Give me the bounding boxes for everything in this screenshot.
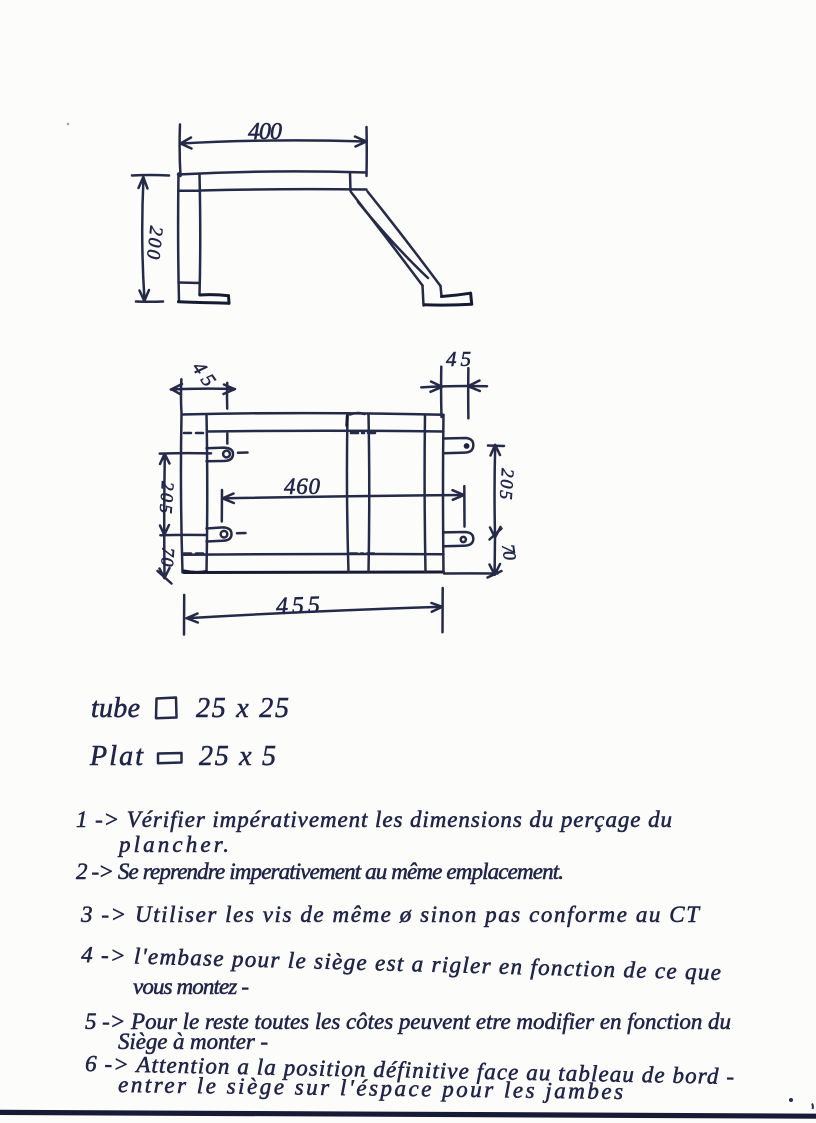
svg-text:455: 455 (275, 592, 320, 620)
svg-text:400: 400 (248, 119, 282, 145)
svg-text:25 x 25: 25 x 25 (196, 693, 289, 724)
svg-text:205: 205 (156, 481, 178, 514)
svg-text:200: 200 (142, 225, 166, 261)
svg-text:205: 205 (496, 468, 518, 500)
svg-text:tube: tube (91, 693, 140, 724)
svg-text:Siège à monter -: Siège à monter - (118, 1029, 268, 1054)
svg-text:70: 70 (157, 547, 178, 567)
svg-text:1 -> Vérifier impérativement l: 1 -> Vérifier impérativement les dimensi… (76, 807, 672, 832)
svg-text:Plat: Plat (89, 741, 144, 772)
svg-text:vous montez -: vous montez - (133, 974, 249, 999)
svg-text:3 -> Utiliser les vis de même: 3 -> Utiliser les vis de même ø sinon pa… (80, 902, 701, 927)
svg-text:70: 70 (498, 543, 520, 562)
svg-text:2 -> Se reprendre imperativeme: 2 -> Se reprendre imperativement au même… (76, 859, 564, 884)
svg-text:460: 460 (284, 474, 321, 499)
